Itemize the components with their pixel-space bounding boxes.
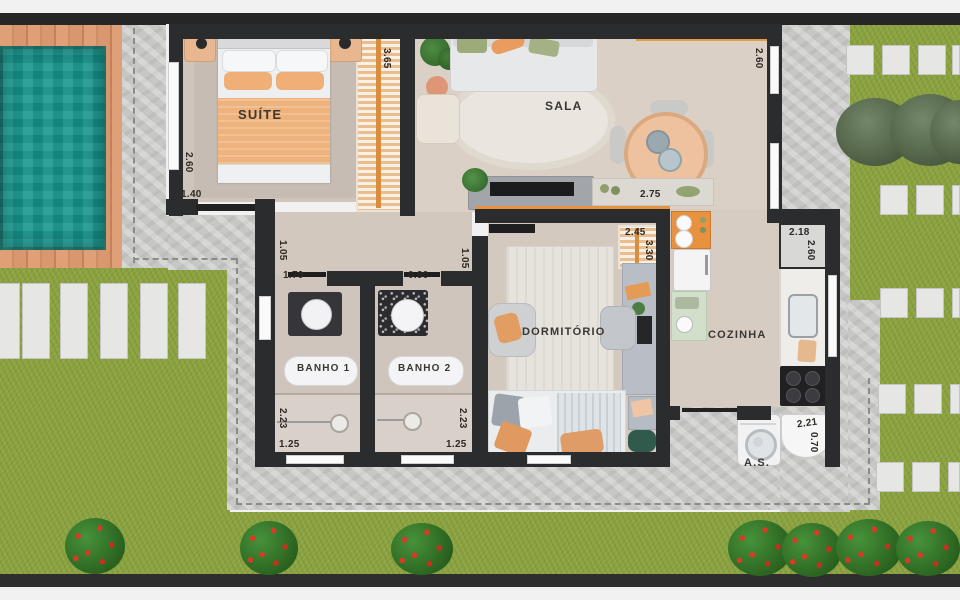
wall-top: [168, 24, 782, 39]
cozinha-label: COZINHA: [708, 330, 767, 341]
dim-as-depth: 0.70: [808, 432, 818, 453]
banho1-shower-drain: [330, 414, 349, 433]
kitchen-basin: [675, 230, 693, 248]
bed-pillow-orange: [276, 72, 324, 90]
paver-square: [880, 185, 908, 215]
dorm-pouf: [628, 430, 656, 452]
paver-square: [952, 185, 960, 215]
bed-pillow: [276, 50, 328, 72]
kettle: [676, 316, 693, 333]
armchair: [416, 94, 460, 144]
table-lamp: [196, 38, 207, 49]
dim-sala-depth: 2.60: [753, 48, 763, 69]
top-margin: [0, 0, 960, 13]
kitchen-shelf-item: [700, 217, 706, 223]
boundary-dash-west: [236, 258, 238, 504]
dorm-bed: [488, 390, 626, 458]
burner: [786, 371, 801, 386]
wall-banho2-dorm: [472, 236, 488, 467]
dim-banho1-width: 1.25: [279, 440, 300, 450]
dim-dorm-closet: 2.45: [625, 228, 646, 238]
dorm-nightstand-cloth: [631, 398, 653, 417]
dim-sala-width: 5.05: [740, 31, 761, 41]
bed-pillow-orange: [224, 72, 272, 90]
wall-banho-top-right: [441, 271, 472, 286]
dormitorio-label: DORMITÓRIO: [522, 327, 606, 338]
flower-bush: [391, 523, 453, 575]
dim-dorm-depth: 3.30: [643, 240, 653, 261]
boundary-dash-south: [236, 503, 870, 505]
tv: [490, 182, 574, 196]
suite-window: [168, 62, 179, 170]
desk-monitor: [637, 316, 652, 344]
washer-panel-line: [740, 423, 776, 425]
wall-dorm-top: [475, 209, 670, 223]
sala-east-window: [770, 46, 779, 94]
cozinha-east-window: [828, 275, 837, 357]
flower-bush: [836, 519, 902, 576]
wall-cozinha-top: [767, 209, 840, 223]
dim-hall-right: 1.05: [459, 248, 469, 269]
sideboard-decor: [600, 184, 609, 193]
dim-banho2-door: 0.90: [408, 271, 429, 281]
paver-slab: [22, 283, 50, 359]
paver-slab: [140, 283, 168, 359]
dinnerware: [658, 148, 682, 172]
flower-bush: [782, 523, 842, 577]
bed-foot-fold: [218, 164, 330, 183]
sideboard-decor: [611, 186, 620, 195]
dim-cozinha-depth: 2.60: [805, 240, 815, 261]
kitchen-tray: [675, 297, 699, 309]
kitchen-basin: [676, 215, 692, 231]
fridge-handle: [705, 255, 708, 275]
paver-square: [916, 185, 944, 215]
kitchen-sink: [788, 294, 818, 338]
paver-square: [916, 288, 944, 318]
flower-bush: [240, 521, 298, 575]
cutting-board: [797, 339, 816, 362]
flower-bush: [65, 518, 125, 574]
paver-square: [882, 45, 910, 75]
wall-suite-sala: [400, 24, 415, 216]
bottom-margin: [0, 587, 960, 600]
kitchen-counter-orange: [671, 211, 711, 249]
wall-banho-top-mid: [327, 271, 403, 286]
paver-slab: [60, 283, 88, 359]
paver-square: [952, 288, 960, 318]
paver-slab: [100, 283, 128, 359]
flower-bush: [896, 521, 960, 576]
dorm-shelf: [489, 224, 535, 233]
banho2-label: BANHO 2: [398, 364, 451, 374]
paver-square: [880, 288, 908, 318]
sala-label: SALA: [545, 100, 582, 112]
dim-banho2-depth: 2.23: [457, 408, 467, 429]
hall-window: [259, 296, 271, 340]
paver-slab: [0, 283, 20, 359]
wall-suite-south: [166, 199, 198, 215]
dim-suite-closet-width: 3.10: [364, 31, 385, 41]
wall-cozinha-south-b: [737, 406, 771, 420]
suite-bed: [218, 28, 330, 182]
dim-hall-left: 1.05: [277, 240, 287, 261]
dim-suite-door: 1.40: [181, 190, 202, 200]
dim-banho1-door: 1.70: [283, 271, 304, 281]
boundary-dash-east: [868, 378, 870, 504]
paver-square: [878, 384, 906, 414]
swimming-pool: [0, 46, 106, 250]
dim-suite-closet-depth: 3.65: [381, 48, 391, 69]
concrete-under-suite: [168, 215, 258, 270]
banho2-sink: [391, 299, 424, 332]
wall-dorm-east: [656, 222, 670, 467]
washer-door-inner: [753, 437, 763, 447]
stove: [780, 366, 826, 406]
paver-square: [912, 462, 940, 492]
dim-suite-side: 2.60: [183, 152, 193, 173]
area-servico-label: A.S.: [744, 458, 770, 469]
concrete-pool-side: [122, 25, 168, 268]
kitchen-shelf-item: [700, 227, 706, 233]
dorm-pillow-white: [518, 395, 553, 428]
paver-square: [846, 45, 874, 75]
bed-pillow: [222, 50, 276, 72]
dim-banho1-depth: 2.23: [277, 408, 287, 429]
burner: [786, 388, 801, 403]
plant: [462, 168, 488, 192]
paver-square: [950, 384, 960, 414]
paver-square: [952, 45, 960, 75]
dim-banho2-width: 1.25: [446, 440, 467, 450]
burner: [805, 371, 820, 386]
dorm-south-window: [527, 455, 571, 464]
sala-east-window: [770, 143, 779, 209]
hall-floor: [258, 212, 472, 274]
suite-wardrobe: [356, 26, 402, 212]
cozinha-door-leaf: [682, 408, 737, 412]
wall-cozinha-south-a: [656, 406, 680, 420]
boundary-dash-left-turn: [133, 258, 237, 260]
paver-square: [918, 45, 946, 75]
burner: [805, 388, 820, 403]
boundary-dash-left: [133, 28, 135, 263]
paver-slab: [178, 283, 206, 359]
banho1-label: BANHO 1: [297, 364, 350, 374]
paver-square: [876, 462, 904, 492]
wall-banho-divider: [360, 286, 375, 456]
banho2-shower-drain: [403, 412, 422, 431]
banho1-south-window: [286, 455, 344, 464]
banho2-south-window: [401, 455, 454, 464]
paver-square: [914, 384, 942, 414]
dim-sala-console: 2.75: [640, 190, 661, 200]
sideboard-decor: [676, 186, 700, 197]
dim-cozinha-width: 2.18: [789, 228, 810, 238]
suite-label: SUÍTE: [238, 108, 282, 121]
floor-plan-canvas: SUÍTE SALA BANHO 1 BANHO 2 DORMITÓRIO CO…: [0, 0, 960, 600]
wall-as-east: [825, 399, 840, 467]
paver-square: [948, 462, 960, 492]
banho1-sink: [301, 299, 332, 330]
